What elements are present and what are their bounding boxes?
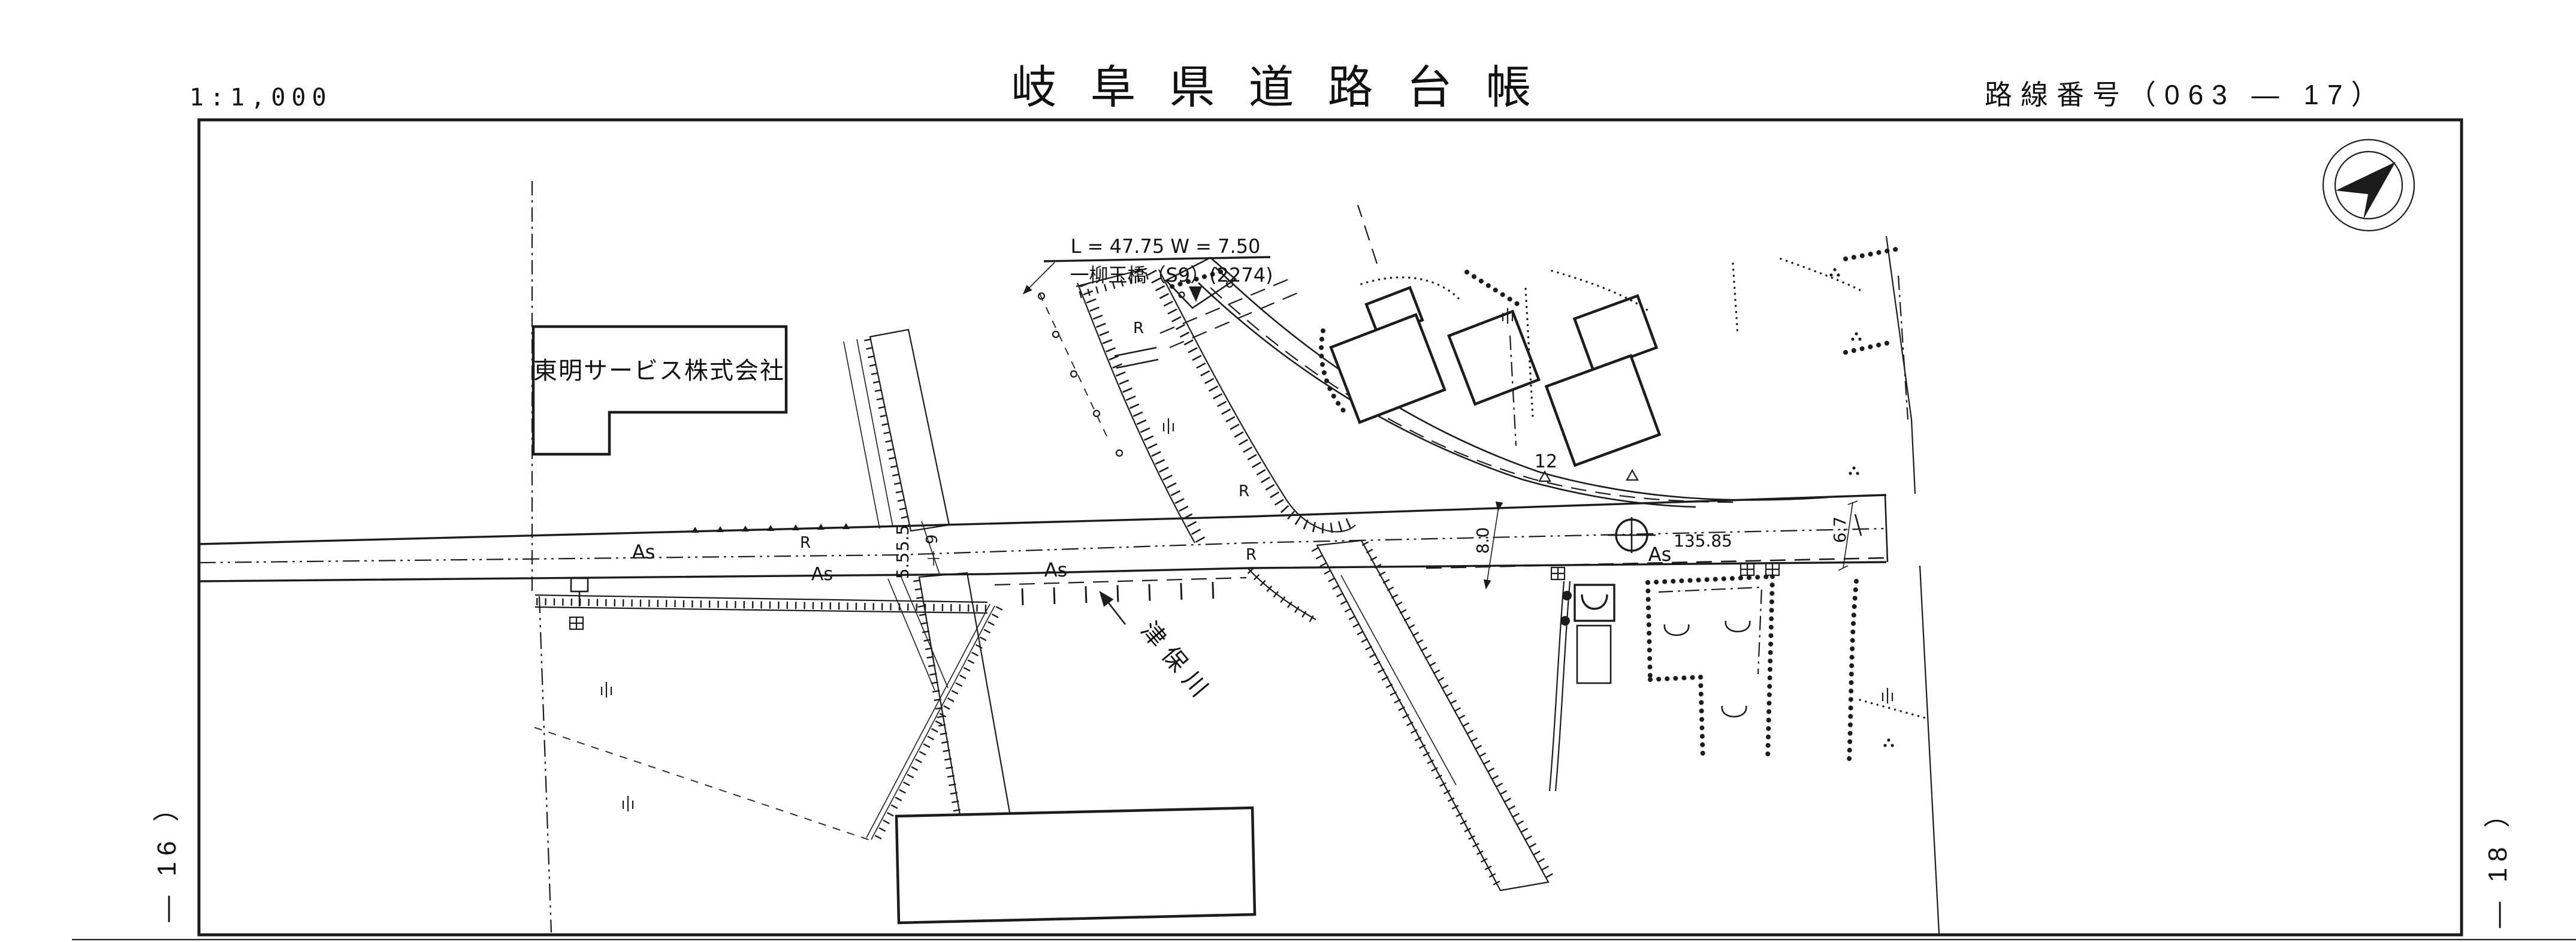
width-label: 5.5 — [893, 525, 913, 552]
road-register-sheet: 1:1,000 岐阜県道路台帳 路線番号（063 ― 17） ― 16 ） ― … — [0, 0, 2576, 942]
main-road — [199, 495, 1888, 581]
surface-as: As — [1648, 543, 1672, 566]
bridge-name: 一柳玉橋（S9）(2274) — [1070, 264, 1273, 286]
road-centerline — [199, 529, 1886, 563]
curve-r: R — [800, 534, 811, 552]
map-canvas: L = 47.75 W = 7.50 一柳玉橋（S9）(2274) 津保川 東明… — [0, 0, 2576, 942]
curve-r: R — [1246, 546, 1257, 564]
river-channel — [1038, 258, 1355, 543]
buildings-upper-right — [1331, 288, 1659, 465]
north-arrow-icon — [2323, 140, 2414, 231]
surface-as: As — [811, 564, 833, 585]
parcel-boundaries-left — [532, 181, 870, 932]
survey-points — [1038, 293, 1122, 456]
river-name: 津保川 — [1135, 617, 1218, 709]
east-levee — [1315, 541, 1552, 890]
parcel-number: 12 — [1535, 451, 1557, 472]
station-distance: 135.85 — [1674, 531, 1732, 551]
river-label: 津保川 — [1100, 592, 1219, 709]
monument — [1575, 585, 1614, 621]
hedge-parcel — [1648, 576, 1772, 760]
width-label: 6.7 — [1830, 517, 1850, 544]
west-levee — [844, 330, 1022, 892]
road-sign — [571, 578, 588, 606]
curve-r: R — [1133, 319, 1144, 337]
bridge-dimensions: L = 47.75 W = 7.50 — [1071, 235, 1261, 258]
plot-boundary-right — [1829, 236, 1939, 934]
width-label: 5.5 — [893, 552, 913, 579]
company-name: 東明サービス株式会社 — [533, 357, 785, 385]
warehouse-building — [896, 808, 1255, 923]
surface-as: As — [1044, 558, 1068, 581]
bridge-label: L = 47.75 W = 7.50 一柳玉橋（S9）(2274) — [1023, 235, 1273, 294]
curve-r: R — [1239, 482, 1249, 500]
width-label: 8.0 — [1473, 527, 1493, 554]
width-label: 9 — [923, 535, 941, 545]
company-building — [533, 327, 786, 454]
surface-as: As — [632, 541, 656, 563]
